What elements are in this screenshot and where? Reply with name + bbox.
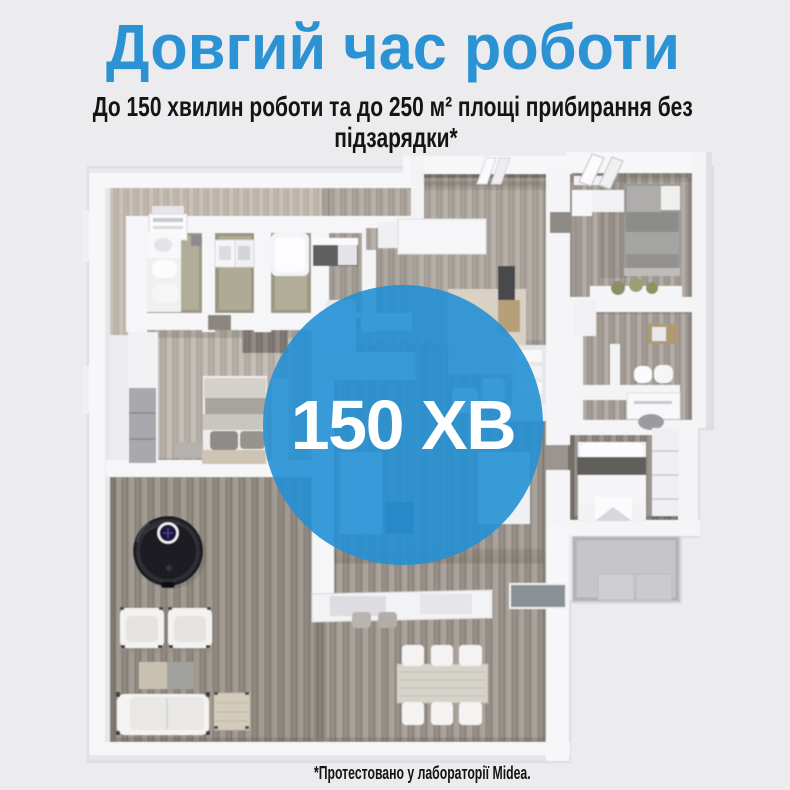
svg-text:150 ХВ: 150 ХВ	[291, 386, 515, 464]
